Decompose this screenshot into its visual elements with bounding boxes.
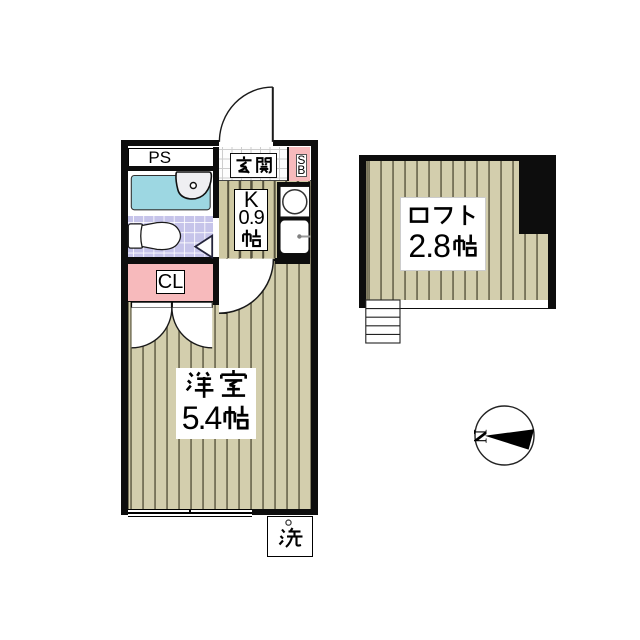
- svg-text:N: N: [469, 429, 490, 443]
